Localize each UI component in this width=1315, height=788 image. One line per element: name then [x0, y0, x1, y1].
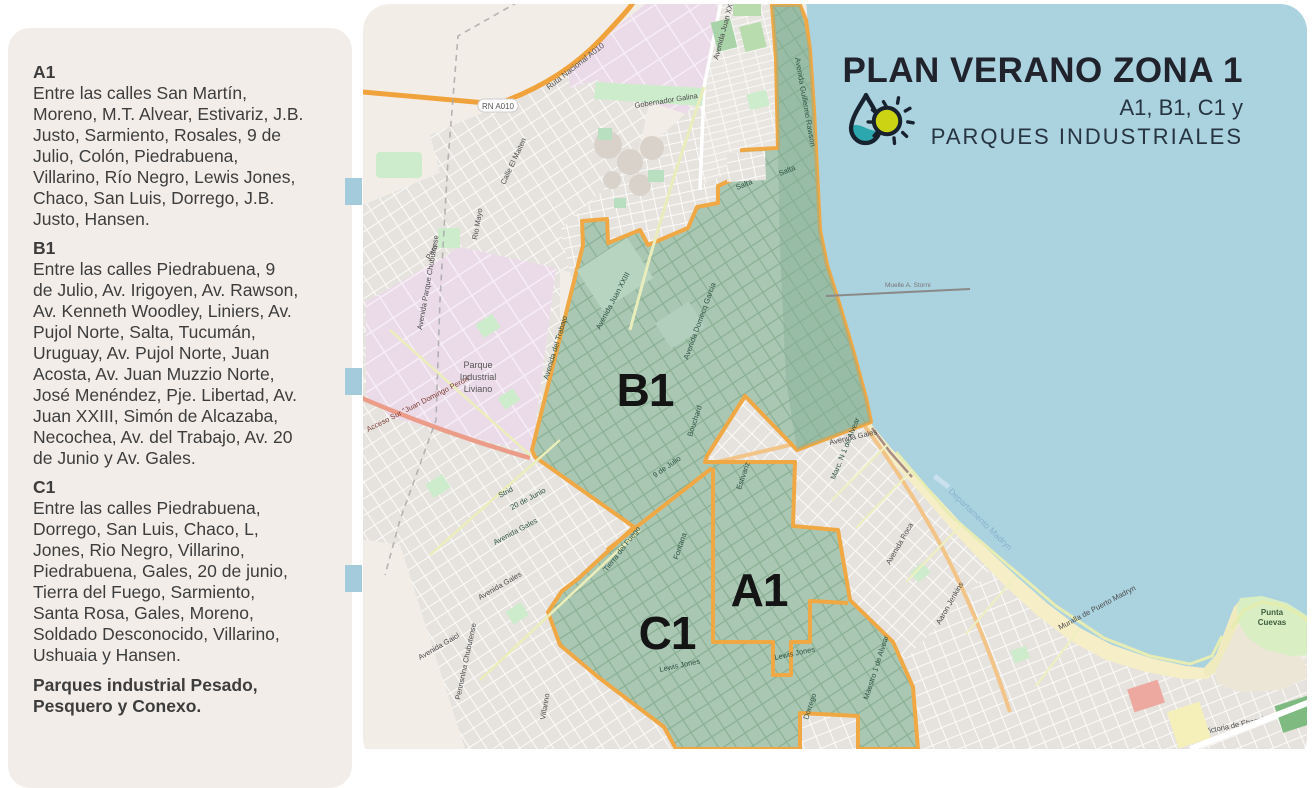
svg-text:Parque: Parque	[463, 360, 492, 370]
svg-text:A1: A1	[731, 564, 788, 616]
svg-text:Muelle A. Storni: Muelle A. Storni	[885, 282, 931, 289]
svg-text:C1: C1	[639, 607, 696, 659]
svg-text:Cuevas: Cuevas	[1258, 618, 1287, 627]
svg-text:B1: B1	[617, 364, 674, 416]
svg-text:Industrial: Industrial	[460, 372, 497, 382]
svg-text:Liviano: Liviano	[464, 384, 493, 394]
svg-text:Punta: Punta	[1261, 608, 1284, 617]
svg-text:RN A010: RN A010	[482, 102, 515, 111]
